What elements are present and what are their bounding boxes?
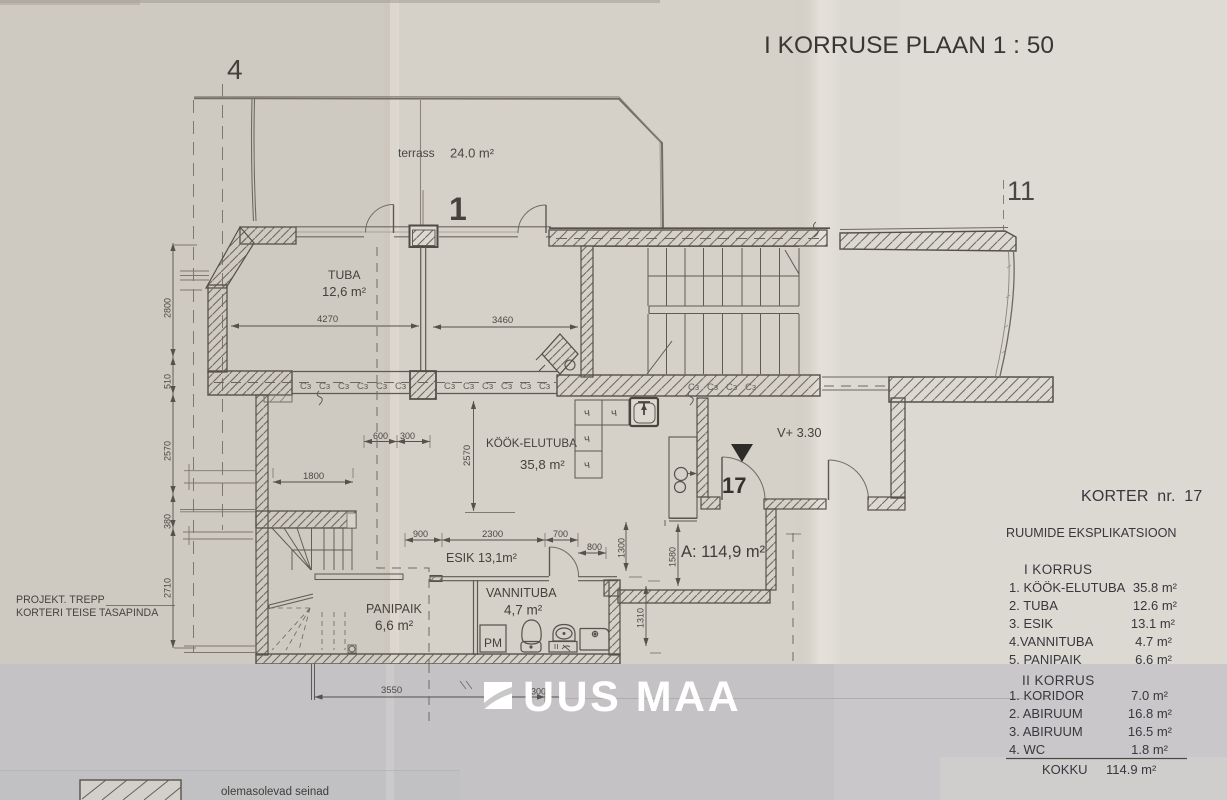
svg-text:Cз: Cз xyxy=(707,382,718,393)
svg-text:PROJEKT. TREPP: PROJEKT. TREPP xyxy=(16,594,105,606)
svg-text:Cз: Cз xyxy=(520,381,531,392)
svg-text:4: 4 xyxy=(227,54,243,85)
svg-text:800: 800 xyxy=(587,542,602,552)
svg-text:1310: 1310 xyxy=(636,608,646,628)
svg-text:510: 510 xyxy=(163,374,173,389)
svg-text:380: 380 xyxy=(163,514,173,529)
svg-text:Cз: Cз xyxy=(501,381,512,392)
svg-text:VANNITUBA: VANNITUBA xyxy=(486,586,557,600)
svg-text:4,7 m²: 4,7 m² xyxy=(504,603,543,618)
svg-text:1300: 1300 xyxy=(617,538,627,558)
svg-text:KÖÖK-ELUTUBA: KÖÖK-ELUTUBA xyxy=(486,437,577,450)
svg-text:Cз: Cз xyxy=(482,381,493,392)
svg-text:1.8 m²: 1.8 m² xyxy=(1131,742,1169,757)
svg-text:6.6 m²: 6.6 m² xyxy=(1135,652,1173,667)
svg-text:4270: 4270 xyxy=(317,314,338,325)
svg-text:Cз: Cз xyxy=(300,381,311,392)
svg-text:A: 114,9 m²: A: 114,9 m² xyxy=(681,543,766,561)
svg-text:3. ABIRUUM: 3. ABIRUUM xyxy=(1009,724,1083,739)
svg-text:terrass: terrass xyxy=(398,146,435,160)
svg-text:4.VANNITUBA: 4.VANNITUBA xyxy=(1009,634,1094,649)
svg-text:1800: 1800 xyxy=(303,471,324,482)
svg-text:Cз: Cз xyxy=(395,381,406,392)
svg-text:114.9 m²: 114.9 m² xyxy=(1106,762,1157,777)
svg-text:2570: 2570 xyxy=(462,445,473,466)
svg-text:I KORRUS: I KORRUS xyxy=(1024,562,1092,577)
svg-text:TUBA: TUBA xyxy=(328,268,361,282)
svg-text:2. ABIRUUM: 2. ABIRUUM xyxy=(1009,706,1083,721)
svg-text:II KORRUS: II KORRUS xyxy=(1022,673,1095,688)
svg-text:600: 600 xyxy=(373,431,388,441)
svg-text:700: 700 xyxy=(553,529,568,539)
svg-text:4.7 m²: 4.7 m² xyxy=(1135,634,1173,649)
svg-text:Cз: Cз xyxy=(357,381,368,392)
svg-text:2710: 2710 xyxy=(163,578,173,598)
svg-text:I KORRUSE PLAAN 1 : 50: I KORRUSE PLAAN 1 : 50 xyxy=(764,32,1054,59)
svg-text:Cз: Cз xyxy=(726,382,737,393)
svg-text:Cз: Cз xyxy=(745,382,756,393)
svg-text:6,6 m²: 6,6 m² xyxy=(375,618,414,633)
svg-text:Cз: Cз xyxy=(319,381,330,392)
svg-text:Cз: Cз xyxy=(376,381,387,392)
svg-text:5. PANIPAIK: 5. PANIPAIK xyxy=(1009,652,1082,667)
svg-text:16.5 m²: 16.5 m² xyxy=(1128,724,1173,739)
svg-text:4. WC: 4. WC xyxy=(1009,742,1045,757)
svg-text:16.8 m²: 16.8 m² xyxy=(1128,706,1173,721)
svg-text:KOKKU: KOKKU xyxy=(1042,762,1088,777)
svg-text:PM: PM xyxy=(484,636,502,650)
svg-text:Cз: Cз xyxy=(539,381,550,392)
svg-text:UUS MAA: UUS MAA xyxy=(523,673,741,721)
svg-text:3. ESIK: 3. ESIK xyxy=(1009,616,1053,631)
svg-text:3550: 3550 xyxy=(381,685,402,696)
svg-text:24.0 m²: 24.0 m² xyxy=(450,146,495,161)
svg-text:1. KORIDOR: 1. KORIDOR xyxy=(1009,688,1084,703)
svg-text:Cз: Cз xyxy=(463,381,474,392)
svg-text:V+ 3.30: V+ 3.30 xyxy=(777,425,821,440)
svg-text:35,8 m²: 35,8 m² xyxy=(520,457,565,472)
svg-text:RUUMIDE EKSPLIKATSIOON: RUUMIDE EKSPLIKATSIOON xyxy=(1006,526,1177,540)
svg-text:12.6 m²: 12.6 m² xyxy=(1133,598,1178,613)
svg-text:PANIPAIK: PANIPAIK xyxy=(366,602,422,616)
svg-text:Cз: Cз xyxy=(444,381,455,392)
svg-text:1580: 1580 xyxy=(668,547,678,567)
svg-text:2570: 2570 xyxy=(163,441,173,461)
svg-text:olemasolevad seinad: olemasolevad seinad xyxy=(221,786,329,798)
svg-text:11: 11 xyxy=(1007,176,1035,206)
svg-text:1. KÖÖK-ELUTUBA: 1. KÖÖK-ELUTUBA xyxy=(1009,580,1126,595)
svg-text:Cз: Cз xyxy=(338,381,349,392)
svg-text:KORTER nr. 17: KORTER nr. 17 xyxy=(1081,488,1202,505)
svg-text:300: 300 xyxy=(400,431,415,441)
svg-text:2300: 2300 xyxy=(482,529,503,540)
svg-text:35.8 m²: 35.8 m² xyxy=(1133,580,1178,595)
svg-text:17: 17 xyxy=(722,473,746,498)
svg-text:7.0 m²: 7.0 m² xyxy=(1131,688,1169,703)
svg-text:13.1 m²: 13.1 m² xyxy=(1131,616,1176,631)
svg-text:3460: 3460 xyxy=(492,315,513,326)
svg-text:KORTERI TEISE TASAPINDA: KORTERI TEISE TASAPINDA xyxy=(16,607,159,619)
svg-text:900: 900 xyxy=(413,529,428,539)
svg-text:2. TUBA: 2. TUBA xyxy=(1009,598,1058,613)
svg-text:1: 1 xyxy=(449,191,467,227)
svg-text:ESIK 13,1m²: ESIK 13,1m² xyxy=(446,551,517,565)
svg-text:12,6 m²: 12,6 m² xyxy=(322,284,367,299)
svg-text:2800: 2800 xyxy=(163,298,173,318)
